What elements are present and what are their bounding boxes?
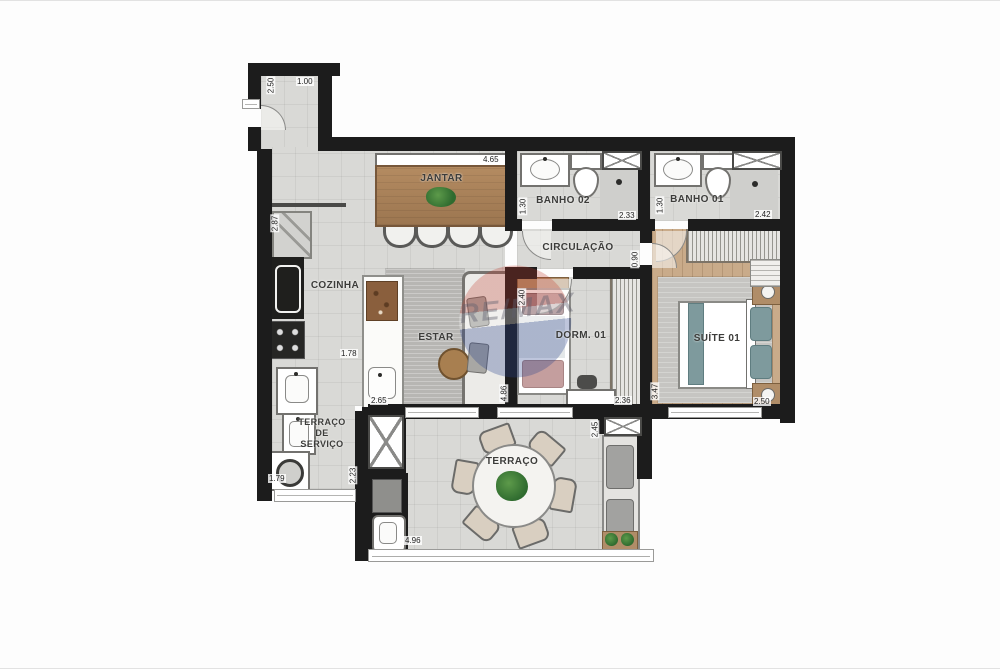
kitchen-sink-counter — [276, 367, 318, 415]
wall-suite-left-a — [640, 229, 652, 243]
sofa-pillow — [466, 342, 489, 374]
side-table-round — [438, 348, 470, 380]
bench-cushion — [606, 445, 634, 489]
window-suite — [668, 407, 762, 418]
planter-plant — [621, 533, 634, 546]
wall-top-main — [318, 137, 782, 151]
dim-corridor-depth: 1.00 — [296, 77, 314, 86]
dim-dorm01-width: 2.40 — [517, 289, 526, 307]
dim-dorm01-length: 2.36 — [614, 396, 632, 405]
dim-terraco-width: 4.96 — [404, 536, 422, 545]
wall-jantar-banho02 — [505, 149, 517, 229]
suite-closet — [686, 229, 784, 263]
label-terraco-servico: TERRAÇO DE SERVIÇO — [287, 417, 357, 450]
dim-cozinha-width: 1.78 — [340, 349, 358, 358]
dim-servico-width: 2.23 — [348, 467, 357, 485]
sofa-pillow — [466, 296, 490, 328]
floor-plan: RE/MAX JANTAR BANHO 02 BANHO 01 COZINHA … — [0, 0, 1000, 669]
banho02-shower-glass — [602, 151, 642, 170]
wall-banhos-bottom-a — [505, 219, 522, 231]
dim-estar-length: 4.86 — [499, 385, 508, 403]
dorm01-desk-chair — [577, 375, 597, 389]
entry-door-leaf — [242, 99, 260, 109]
banho01-shower-glass — [732, 151, 782, 170]
suite-bed — [678, 301, 750, 389]
banho02-sink — [520, 153, 570, 187]
dim-suite-length: 3.47 — [650, 383, 659, 401]
shaft-duct — [368, 415, 404, 469]
dim-terraco-depth: 2.45 — [590, 421, 599, 439]
terrace-table-plant — [496, 471, 528, 501]
dorm01-bed-blanket — [522, 360, 564, 388]
wall-dorm-top-b — [573, 267, 650, 279]
wall-corridor-left-lower — [248, 127, 261, 151]
wall-banhos-bottom-c — [688, 219, 792, 231]
oven-stove — [270, 321, 305, 359]
dim-banho01-length: 2.42 — [754, 210, 772, 219]
banho01-shower-drain — [752, 181, 758, 187]
dim-circulacao-width: 0.90 — [630, 251, 639, 269]
dim-jantar-width: 4.65 — [482, 155, 500, 164]
dim-banho02-length: 2.33 — [618, 211, 636, 220]
suite-bed-runner — [688, 303, 704, 385]
dim-cozinha-height: 2.87 — [270, 215, 279, 233]
label-suite01: SUÍTE 01 — [662, 333, 772, 344]
label-dorm01: DORM. 01 — [531, 330, 631, 341]
wall-kitchen-partition — [272, 203, 346, 207]
window-service-terrace — [274, 489, 356, 502]
suite-closet-shelves — [750, 259, 782, 287]
sliding-door-dorm — [497, 407, 573, 418]
label-banho02: BANHO 02 — [513, 195, 613, 206]
terrace-railing — [368, 549, 654, 562]
wall-right-main — [780, 137, 795, 423]
banho01-sink — [654, 153, 702, 187]
dim-banho01-width: 1.30 — [655, 197, 664, 215]
dim-island-length: 2.65 — [370, 396, 388, 405]
terrace-duct — [604, 417, 642, 436]
label-circulacao: CIRCULAÇÃO — [528, 242, 628, 253]
dim-banho02-width: 1.30 — [518, 198, 527, 216]
island-sink-faucet — [378, 373, 382, 377]
banho02-shower-drain — [616, 179, 622, 185]
label-jantar: JANTAR — [375, 173, 508, 184]
dim-suite-width: 2.50 — [753, 397, 771, 406]
planter-plant — [605, 533, 618, 546]
dim-servico-length: 1.79 — [268, 474, 286, 483]
suite-pillow — [750, 345, 772, 379]
island-sink — [368, 367, 396, 399]
barbecue-grill — [372, 515, 406, 553]
sliding-door-estar — [405, 407, 479, 418]
grill-cabinet — [372, 479, 402, 513]
dim-corridor-width: 2.50 — [266, 77, 275, 95]
wall-left-main — [257, 149, 272, 501]
label-cozinha: COZINHA — [290, 280, 380, 291]
dining-centerpiece-plant — [426, 187, 456, 207]
label-terraco: TERRAÇO — [462, 456, 562, 467]
label-estar: ESTAR — [398, 332, 474, 343]
